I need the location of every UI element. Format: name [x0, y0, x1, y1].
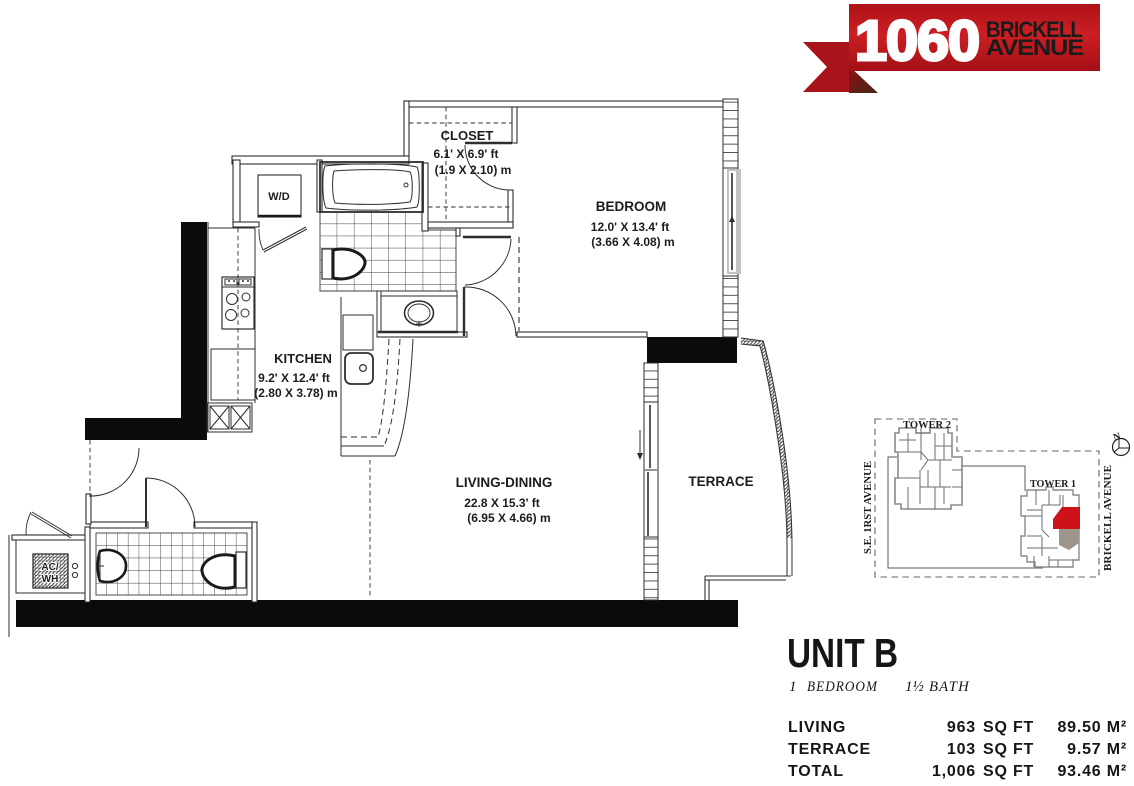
- svg-text:SQ FT: SQ FT: [983, 719, 1034, 736]
- svg-text:1,006: 1,006: [932, 763, 976, 780]
- svg-text:TERRACE: TERRACE: [788, 741, 871, 758]
- svg-text:BRICKELL AVENUE: BRICKELL AVENUE: [1102, 465, 1114, 571]
- svg-text:TOWER 1: TOWER 1: [1030, 478, 1076, 490]
- svg-text:9.57 M²: 9.57 M²: [1067, 741, 1127, 758]
- svg-text:1: 1: [789, 679, 797, 695]
- svg-text:963: 963: [947, 719, 976, 736]
- svg-text:S.E. 1RST AVENUE: S.E. 1RST AVENUE: [862, 461, 874, 554]
- svg-text:9.2' X 12.4' ft: 9.2' X 12.4' ft: [258, 371, 330, 385]
- svg-text:BATH: BATH: [929, 679, 970, 695]
- svg-text:BEDROOM: BEDROOM: [596, 199, 667, 214]
- svg-text:N: N: [1112, 431, 1123, 444]
- svg-text:22.8 X 15.3' ft: 22.8 X 15.3' ft: [464, 496, 540, 510]
- svg-text:12.0' X 13.4' ft: 12.0' X 13.4' ft: [591, 220, 669, 234]
- svg-text:103: 103: [947, 741, 976, 758]
- svg-text:WH: WH: [42, 574, 59, 585]
- svg-text:(6.95 X 4.66) m: (6.95 X 4.66) m: [467, 511, 550, 525]
- svg-text:93.46 M²: 93.46 M²: [1057, 763, 1127, 780]
- svg-text:TERRACE: TERRACE: [688, 474, 753, 489]
- svg-text:UNIT B: UNIT B: [787, 630, 898, 676]
- svg-text:6.1' X 6.9' ft: 6.1' X 6.9' ft: [433, 147, 498, 161]
- svg-text:LIVING: LIVING: [788, 719, 846, 736]
- svg-text:(2.80 X 3.78) m: (2.80 X 3.78) m: [254, 386, 337, 400]
- svg-text:BEDROOM: BEDROOM: [807, 679, 878, 695]
- svg-text:TOWER 2: TOWER 2: [903, 419, 951, 431]
- svg-text:CLOSET: CLOSET: [441, 128, 494, 143]
- svg-text:SQ FT: SQ FT: [983, 763, 1034, 780]
- svg-text:AC/: AC/: [41, 562, 58, 573]
- svg-text:LIVING-DINING: LIVING-DINING: [456, 475, 553, 490]
- svg-text:AVENUE: AVENUE: [986, 35, 1083, 60]
- svg-text:1½: 1½: [905, 679, 924, 695]
- svg-text:(3.66 X 4.08) m: (3.66 X 4.08) m: [591, 235, 674, 249]
- svg-text:1060: 1060: [855, 9, 979, 73]
- svg-text:89.50 M²: 89.50 M²: [1057, 719, 1127, 736]
- svg-text:SQ FT: SQ FT: [983, 741, 1034, 758]
- svg-text:KITCHEN: KITCHEN: [274, 351, 332, 366]
- svg-text:(1.9 X 2.10) m: (1.9 X 2.10) m: [435, 163, 512, 177]
- svg-text:W/D: W/D: [268, 191, 289, 203]
- svg-text:TOTAL: TOTAL: [788, 763, 844, 780]
